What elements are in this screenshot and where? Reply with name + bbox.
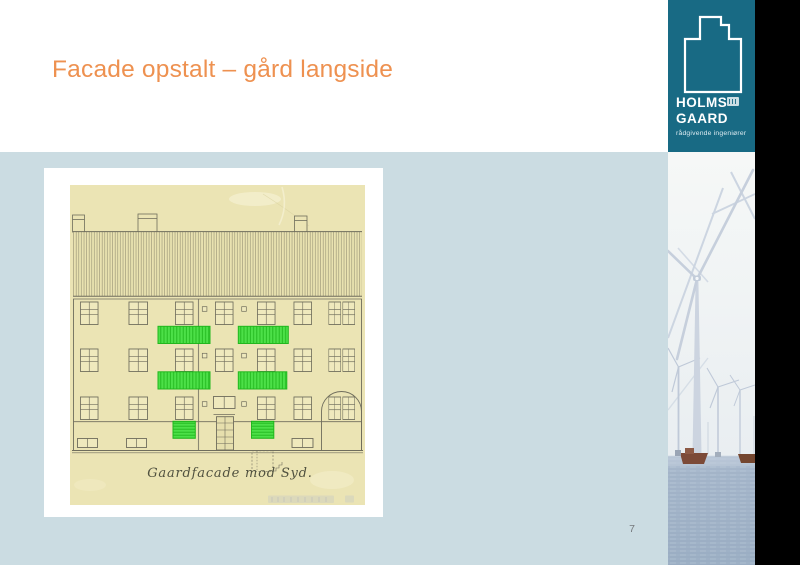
page-number: 7 <box>622 523 642 535</box>
logo-name-line2: GAARD <box>676 111 728 126</box>
holmsgaard-house-icon <box>668 0 755 95</box>
figure-frame: Gaardfacade mod Syd. <box>44 168 383 517</box>
page-title: Facade opstalt – gård langside <box>52 56 393 84</box>
logo-name-line1: HOLMS <box>676 95 727 110</box>
holmsgaard-logo: HOLMS GAARD rådgivende ingeniører <box>668 0 755 152</box>
logo-badge <box>727 97 739 106</box>
drawing-caption: Gaardfacade mod Syd. <box>147 466 312 481</box>
right-black-strip <box>755 0 800 565</box>
slide: Facade opstalt – gård langside <box>0 0 800 565</box>
wind-turbines-photo <box>668 152 755 565</box>
logo-tagline: rådgivende ingeniører <box>676 130 746 137</box>
facade-elevation-drawing: Gaardfacade mod Syd. <box>70 185 365 505</box>
